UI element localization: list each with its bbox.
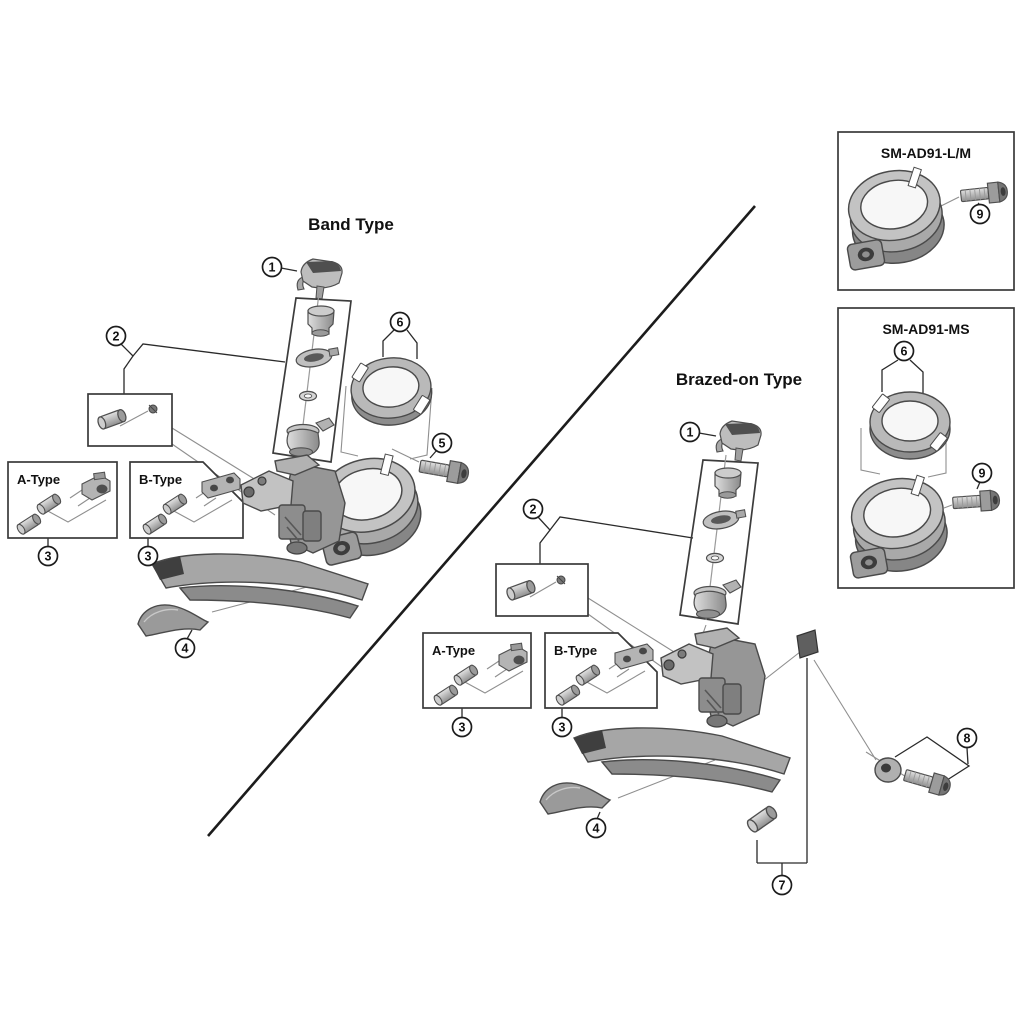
- svg-text:5: 5: [439, 436, 446, 450]
- sm-ad91-lm-title: SM-AD91-L/M: [881, 145, 971, 161]
- band-a-type-title: A-Type: [17, 472, 60, 487]
- band-adjuster-stack: [273, 293, 351, 462]
- front-derailleur-exploded-diagram: Band Type A-Type B-Type: [0, 0, 1024, 1024]
- sm-ad91-ms-title: SM-AD91-MS: [882, 321, 969, 337]
- callout-band-4: 4: [176, 639, 195, 658]
- callout-brazed-8: 8: [958, 729, 977, 748]
- brazed-cable-fixing-parts-box: [496, 564, 588, 616]
- brazed-a-type-title: A-Type: [432, 643, 475, 658]
- brazed-b-type-box: B-Type: [545, 633, 657, 708]
- callout-band-6: 6: [391, 313, 410, 332]
- svg-text:7: 7: [779, 878, 786, 892]
- band-type-title: Band Type: [308, 215, 394, 234]
- band-derailleur-body: [241, 455, 345, 554]
- callout-brazed-3-b: 3: [553, 718, 572, 737]
- callout-brazed-1: 1: [681, 423, 700, 442]
- band-cable-cover: [297, 259, 342, 299]
- callout-brazed-4: 4: [587, 819, 606, 838]
- callout-ms-9: 9: [973, 464, 992, 483]
- brazed-cable-cover: [716, 421, 761, 461]
- svg-text:3: 3: [459, 720, 466, 734]
- brazed-b-type-title: B-Type: [554, 643, 597, 658]
- svg-text:2: 2: [113, 329, 120, 343]
- brazed-derailleur-body: [661, 628, 765, 727]
- brazed-a-type-box: A-Type: [423, 633, 531, 708]
- svg-text:4: 4: [182, 641, 189, 655]
- callout-band-5: 5: [433, 434, 452, 453]
- callout-band-3-a: 3: [39, 547, 58, 566]
- svg-text:6: 6: [397, 315, 404, 329]
- band-skid-plate: [138, 605, 208, 636]
- svg-text:2: 2: [530, 502, 537, 516]
- band-a-type-box: A-Type: [8, 462, 117, 538]
- band-b-type-title: B-Type: [139, 472, 182, 487]
- svg-text:1: 1: [687, 425, 694, 439]
- svg-text:9: 9: [977, 207, 984, 221]
- svg-text:9: 9: [979, 466, 986, 480]
- callout-brazed-7: 7: [773, 876, 792, 895]
- fixing-nut: [875, 758, 901, 782]
- band-shim-rings: [348, 354, 435, 429]
- callout-lm-9: 9: [971, 205, 990, 224]
- svg-text:3: 3: [559, 720, 566, 734]
- band-clamp-bolt: [418, 456, 470, 485]
- brazed-skid-plate: [540, 783, 610, 814]
- svg-text:6: 6: [901, 344, 908, 358]
- fixing-bolt: [902, 765, 952, 797]
- callout-ms-6: 6: [895, 342, 914, 361]
- callout-band-1: 1: [263, 258, 282, 277]
- svg-text:3: 3: [145, 549, 152, 563]
- backup-plate: [797, 630, 818, 658]
- sm-ad91-ms-shim-rings: [870, 392, 950, 459]
- brazed-chain-cage: [574, 728, 790, 792]
- sm-ad91-ms-inset: SM-AD91-MS: [838, 308, 1014, 588]
- brazed-adjuster-stack: [680, 455, 758, 624]
- fixing-pin: [745, 805, 778, 834]
- callout-brazed-2: 2: [524, 500, 543, 519]
- band-b-type-box: B-Type: [130, 462, 243, 538]
- callout-band-2: 2: [107, 327, 126, 346]
- band-type-section: Band Type A-Type B-Type: [8, 215, 470, 639]
- svg-text:4: 4: [593, 821, 600, 835]
- parts-diagram-page: Band Type A-Type B-Type: [0, 0, 1024, 1024]
- svg-text:1: 1: [269, 260, 276, 274]
- svg-text:8: 8: [964, 731, 971, 745]
- callout-band-3-b: 3: [139, 547, 158, 566]
- band-cable-fixing-parts-box: [88, 394, 172, 446]
- brazed-on-type-title: Brazed-on Type: [676, 370, 802, 389]
- callout-brazed-3-a: 3: [453, 718, 472, 737]
- svg-text:3: 3: [45, 549, 52, 563]
